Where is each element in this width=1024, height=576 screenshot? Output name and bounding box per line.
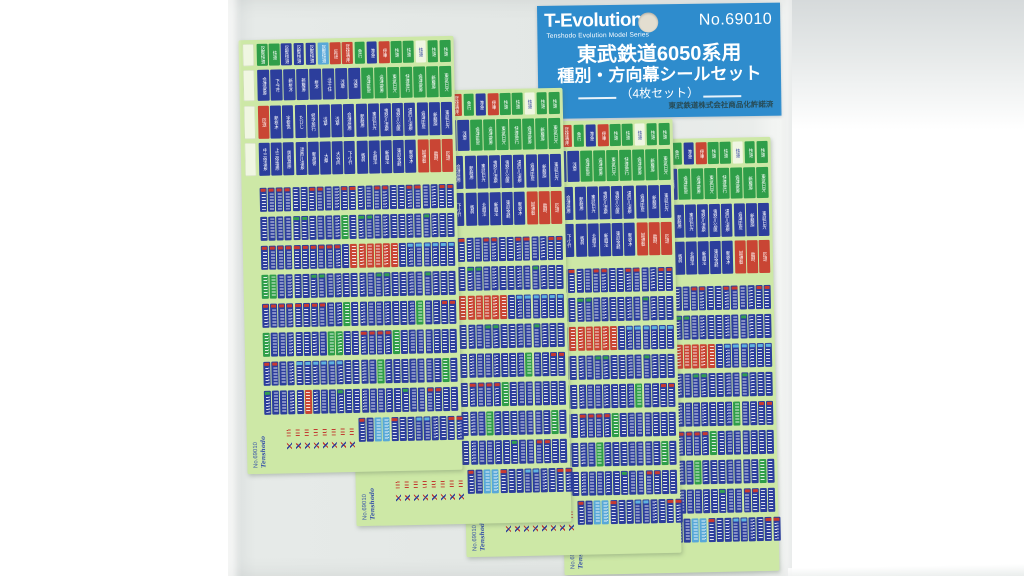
sticker <box>723 286 731 310</box>
sticker-cap <box>424 417 429 420</box>
sticker-glyphs <box>582 473 586 494</box>
sticker: 新藤原 <box>574 187 586 220</box>
sticker: 快速 <box>659 123 670 145</box>
sticker-glyphs <box>378 336 382 353</box>
sticker-glyphs <box>512 412 516 433</box>
sticker-glyphs <box>758 316 762 337</box>
sticker <box>708 373 716 397</box>
sticker-glyphs <box>302 221 306 238</box>
sticker-glyphs <box>294 189 298 210</box>
footer-mark-arrow <box>405 494 410 501</box>
sticker-text: 浅草 <box>571 152 577 181</box>
sticker: 東武日光 <box>439 66 452 97</box>
sticker-glyphs <box>685 346 689 367</box>
sticker-text: 東武金崎 <box>713 242 719 273</box>
sticker <box>533 323 541 347</box>
sticker <box>509 324 517 348</box>
sticker-glyphs <box>595 328 599 349</box>
sticker-glyphs <box>726 519 730 540</box>
sticker <box>651 354 659 378</box>
sticker <box>559 381 567 405</box>
sticker <box>742 401 750 425</box>
sticker-glyphs <box>557 241 561 258</box>
sticker-glyphs <box>630 443 634 464</box>
sticker <box>557 323 565 347</box>
sticker <box>477 354 485 378</box>
sticker-glyphs <box>409 418 413 439</box>
sticker-cap <box>741 344 746 347</box>
sticker <box>294 274 302 298</box>
sticker-glyphs <box>594 274 598 291</box>
sticker: 快速 <box>512 93 523 115</box>
sticker-glyphs <box>432 215 436 236</box>
sticker-glyphs <box>660 331 664 348</box>
sticker: 鬼怒川温泉 <box>599 186 611 219</box>
sticker-glyphs <box>598 473 602 494</box>
sticker-glyphs <box>660 501 664 522</box>
sticker-glyphs <box>559 324 563 345</box>
sticker-text: 新高徳 <box>310 143 316 174</box>
sticker: 回送 <box>551 191 563 224</box>
sticker-glyphs <box>369 303 373 324</box>
sticker-text: 浅草 <box>461 121 467 150</box>
sticker <box>751 459 759 483</box>
sticker <box>527 439 535 463</box>
sticker-glyphs <box>383 191 387 208</box>
sticker-text: 新藤原 <box>358 105 364 136</box>
sticker-cap <box>766 344 771 347</box>
sticker-glyphs <box>716 287 720 308</box>
sticker <box>469 383 477 407</box>
sticker: 浅草 <box>457 120 470 151</box>
sticker <box>544 439 552 463</box>
sticker-glyphs <box>526 300 530 317</box>
sticker-text: 停車 <box>600 125 605 145</box>
sticker: 湯西川温泉 <box>295 142 307 175</box>
sticker-glyphs <box>688 491 692 512</box>
sticker-glyphs <box>344 246 348 267</box>
sticker-glyphs <box>677 504 681 521</box>
sticker <box>666 267 674 291</box>
sticker-glyphs <box>542 470 546 491</box>
sticker <box>357 186 365 210</box>
sticker <box>725 373 733 397</box>
sticker: 会津高原 <box>691 168 704 199</box>
sticker-glyphs <box>485 268 489 289</box>
sticker-glyphs <box>345 304 349 325</box>
sticker-cap <box>311 275 316 278</box>
sticker-glyphs <box>464 442 468 463</box>
sticker <box>333 186 341 210</box>
sticker <box>707 315 715 339</box>
sticker <box>585 327 593 351</box>
sticker: 下今市 <box>270 69 283 100</box>
sticker <box>716 344 724 368</box>
sticker <box>477 382 485 406</box>
sticker-glyphs <box>503 355 507 376</box>
sticker <box>691 315 699 339</box>
sticker-glyphs <box>376 245 380 266</box>
sticker-text: 浅草 <box>322 105 328 136</box>
sticker-glyphs <box>709 317 713 338</box>
sticker <box>743 488 751 512</box>
sticker <box>570 385 578 409</box>
sticker-text: 急行 <box>357 43 362 63</box>
sticker-cap <box>297 362 302 365</box>
sticker <box>659 325 667 349</box>
sticker <box>410 388 418 412</box>
sticker <box>748 314 756 338</box>
sticker: 東武日光 <box>704 168 717 199</box>
sticker-glyphs <box>327 217 331 238</box>
sticker: 鬼怒川公園 <box>392 103 404 136</box>
sticker <box>398 185 406 209</box>
sticker-cap <box>566 469 571 472</box>
sticker <box>699 315 707 339</box>
sticker-glyphs <box>670 388 674 405</box>
sticker-glyphs <box>759 374 763 395</box>
sticker-cap <box>516 238 521 241</box>
footer-mark-red <box>341 428 345 435</box>
sticker-glyphs <box>603 299 607 320</box>
sticker-glyphs <box>631 472 635 493</box>
sticker-cap <box>376 273 381 276</box>
sticker-glyphs <box>702 379 706 396</box>
footer-mark-arrow <box>569 524 574 531</box>
sticker-glyphs <box>494 330 498 347</box>
sticker <box>311 303 319 327</box>
sticker-text: 快速 <box>442 41 447 61</box>
sticker: 東武金崎 <box>393 140 405 173</box>
sticker-glyphs <box>353 303 357 324</box>
sticker-glyphs <box>500 239 504 260</box>
sticker-cap <box>359 419 364 422</box>
sticker: 新藤原 <box>429 102 441 135</box>
sticker <box>735 459 743 483</box>
sticker-cap <box>486 383 491 386</box>
sticker: 会津田島 <box>678 168 691 199</box>
sticker-glyphs <box>759 407 763 424</box>
sticker-glyphs <box>644 331 648 348</box>
sticker-glyphs <box>685 520 689 541</box>
sticker: 新鹿沼 <box>600 223 612 256</box>
sticker <box>685 403 693 427</box>
sticker-glyphs <box>661 356 665 377</box>
sticker <box>440 271 448 295</box>
sticker <box>474 238 482 262</box>
sticker-glyphs <box>760 431 764 452</box>
sticker-cap <box>470 384 475 387</box>
sticker <box>447 184 455 208</box>
sticker-glyphs <box>628 501 632 522</box>
sticker-glyphs <box>654 443 658 464</box>
sticker: 区間快速 <box>293 43 304 65</box>
sticker-glyphs <box>355 390 359 411</box>
sticker-text: 会津高原 <box>261 71 267 100</box>
sticker <box>476 325 484 349</box>
sticker-cap <box>408 244 413 247</box>
sticker-glyphs <box>620 501 624 522</box>
sticker-cap <box>392 418 397 421</box>
sticker-text: 会津高原 <box>487 120 493 149</box>
sticker-glyphs <box>558 299 562 316</box>
sticker <box>701 402 709 426</box>
hang-hole <box>638 12 658 32</box>
sticker <box>316 187 324 211</box>
sticker-cap <box>533 266 538 269</box>
sticker-cap <box>588 415 593 418</box>
sticker <box>610 355 618 379</box>
sticker-glyphs <box>298 392 302 413</box>
sticker-text: 男鹿高原 <box>286 143 292 174</box>
sticker-glyphs <box>265 396 269 413</box>
sticker-text: 快速 <box>272 45 277 65</box>
sticker <box>328 331 336 355</box>
sticker: 快速 <box>391 41 402 63</box>
sticker-cap <box>764 286 769 289</box>
sticker-text: 東武日光 <box>500 120 506 149</box>
sticker-cap <box>449 417 454 420</box>
sticker-glyphs <box>757 291 761 308</box>
sticker <box>617 297 625 321</box>
sticker-glyphs <box>449 421 453 438</box>
sticker <box>517 353 525 377</box>
sticker-text: 東武日光 <box>708 169 714 198</box>
product-photo: T-Evolution Tenshodo Evolution Model Ser… <box>0 0 1024 576</box>
sticker <box>288 361 296 385</box>
sticker-glyphs <box>352 245 356 266</box>
sticker <box>558 352 566 376</box>
sticker: 会津田島 <box>635 185 647 218</box>
sticker-glyphs <box>399 186 403 207</box>
sticker <box>400 301 408 325</box>
sticker-glyphs <box>541 267 545 288</box>
sticker: 浅草 <box>319 104 331 137</box>
sticker-glyphs <box>662 413 666 434</box>
sticker <box>271 333 279 357</box>
sticker <box>390 214 398 238</box>
sticker-glyphs <box>271 251 275 268</box>
sticker <box>585 298 593 322</box>
sticker <box>261 275 269 299</box>
sticker <box>508 469 516 493</box>
sticker <box>719 489 727 513</box>
sticker-text: 北鹿沼 <box>371 141 377 172</box>
sticker: 新藤原 <box>296 69 309 100</box>
sticker <box>767 430 775 454</box>
sticker <box>296 361 304 385</box>
sticker <box>500 295 508 319</box>
sticker-cap <box>319 246 324 249</box>
sticker: 快速急行 <box>717 168 730 199</box>
sticker <box>278 274 286 298</box>
sticker-text: 快速 <box>661 124 666 144</box>
sticker <box>475 267 483 291</box>
sticker: 鬼怒川温泉 <box>697 204 709 237</box>
sticker-glyphs <box>696 462 700 483</box>
sticker-glyphs <box>587 328 591 349</box>
sticker <box>398 214 406 238</box>
sticker-glyphs <box>694 404 698 425</box>
sticker: 会津高原 <box>593 150 606 181</box>
sticker <box>415 242 423 266</box>
sticker <box>507 237 515 261</box>
sticker <box>507 266 515 290</box>
sticker <box>702 431 710 455</box>
sticker <box>319 303 327 327</box>
sticker-glyphs <box>304 308 308 325</box>
sticker-text: 回送 <box>333 43 338 63</box>
sticker <box>580 472 588 496</box>
sticker-glyphs <box>462 355 466 376</box>
sticker-text: 会津高原 <box>417 67 423 96</box>
sticker-glyphs <box>387 390 391 411</box>
sticker-cap <box>622 472 627 475</box>
sticker-text: 鬼怒川公園 <box>504 156 510 187</box>
sticker-cap <box>558 469 563 472</box>
sticker-text: 臨時 <box>651 223 657 254</box>
sticker <box>450 329 458 353</box>
sticker-glyphs <box>518 325 522 346</box>
sticker <box>310 274 318 298</box>
sticker-glyphs <box>328 275 332 296</box>
sticker-glyphs <box>492 243 496 260</box>
sticker <box>620 413 628 437</box>
sticker <box>417 329 425 353</box>
sticker-text: 新藤原 <box>300 70 306 99</box>
sticker-glyphs <box>752 432 756 453</box>
sticker <box>410 359 418 383</box>
sticker <box>341 186 349 210</box>
sticker: 北鹿沼 <box>587 223 599 256</box>
sticker <box>764 285 772 309</box>
sticker-glyphs <box>629 385 633 406</box>
sticker: 快速 <box>720 142 731 164</box>
sticker: 東武日光 <box>685 204 697 237</box>
sticker-text: 快速急行 <box>404 68 410 97</box>
sticker <box>612 442 620 466</box>
sticker: 会津田島 <box>580 150 593 181</box>
sticker-glyphs <box>435 331 439 352</box>
sticker: 回送 <box>442 139 454 172</box>
sticker <box>734 430 742 454</box>
sticker-text: 新鹿沼 <box>493 193 499 224</box>
sticker-glyphs <box>263 276 267 297</box>
sticker: 快速 <box>500 93 511 115</box>
sticker-glyphs <box>461 326 465 347</box>
sticker-glyphs <box>571 357 575 378</box>
sticker <box>560 439 568 463</box>
sticker-text: 会津高原 <box>597 151 603 180</box>
sticker-glyphs <box>469 297 473 318</box>
sticker-cap <box>382 186 387 189</box>
sticker-text: 下小代 <box>566 225 572 256</box>
sticker: 東武日光 <box>368 103 380 136</box>
sticker-glyphs <box>360 245 364 266</box>
footer-mark-red <box>305 429 309 436</box>
sticker-cap <box>741 315 746 318</box>
sticker-text: 北鹿沼 <box>590 224 596 255</box>
sticker-glyphs <box>742 523 746 540</box>
sticker <box>549 468 557 492</box>
sticker <box>765 372 773 396</box>
sticker <box>418 387 426 411</box>
sticker-cap <box>485 325 490 328</box>
footer-mark-arrow <box>432 494 437 501</box>
sticker-text: 北鹿沼 <box>688 242 694 273</box>
footer-mark-red <box>450 480 454 487</box>
sticker-glyphs <box>363 390 367 411</box>
sticker-glyphs <box>560 382 564 403</box>
sticker-cap <box>643 297 648 300</box>
sticker-glyphs <box>701 317 705 338</box>
sticker-glyphs <box>753 494 757 511</box>
sticker: 東武日光 <box>441 102 453 135</box>
sticker-glyphs <box>476 272 480 289</box>
sticker-cap <box>533 295 538 298</box>
sticker-text: 板荷 <box>468 194 474 225</box>
sticker <box>524 294 532 318</box>
sticker-glyphs <box>376 216 380 237</box>
sticker-cap <box>320 304 325 307</box>
sticker <box>510 382 518 406</box>
sticker-text: 会津高原 <box>636 150 642 179</box>
sticker-glyphs <box>417 422 421 439</box>
sticker-glyphs <box>461 297 465 318</box>
sheet-footer: No.69010Tenshodo <box>362 478 377 520</box>
sticker <box>448 242 456 266</box>
sticker-glyphs <box>663 471 667 492</box>
sticker-glyphs <box>611 299 615 320</box>
sticker-glyphs <box>289 363 293 384</box>
sticker-glyphs <box>311 250 315 267</box>
sticker-cap <box>693 374 698 377</box>
sticker <box>557 468 565 492</box>
sticker-glyphs <box>305 366 309 383</box>
sticker: 大桑 <box>320 141 332 174</box>
sticker-glyphs <box>310 217 314 238</box>
sticker: 快速急行 <box>400 67 413 98</box>
sticker: 新藤原 <box>535 118 548 149</box>
sticker <box>376 301 384 325</box>
sticker-glyphs <box>435 360 439 381</box>
sticker-cap <box>302 217 307 220</box>
sticker-glyphs <box>550 470 554 491</box>
sticker <box>407 417 415 441</box>
sticker-glyphs <box>735 403 739 424</box>
sticker <box>467 296 475 320</box>
sticker <box>543 410 551 434</box>
sticker-glyphs <box>745 494 749 511</box>
sticker <box>361 360 369 384</box>
sticker-glyphs <box>493 471 497 492</box>
sticker-glyphs <box>486 355 490 376</box>
sticker <box>541 468 549 492</box>
sticker: 東武金崎 <box>502 192 514 225</box>
sticker-cap <box>416 418 421 421</box>
sticker-glyphs <box>549 242 553 259</box>
sticker-glyphs <box>369 274 373 295</box>
sticker-text: 新藤原 <box>430 67 436 96</box>
sticker-cap <box>491 238 496 241</box>
sticker <box>724 344 732 368</box>
sticker: 回送 <box>330 42 341 64</box>
sticker-glyphs <box>463 413 467 434</box>
sticker-cap <box>559 353 564 356</box>
sticker-glyphs <box>409 273 413 294</box>
sticker-glyphs <box>286 218 290 239</box>
sticker-cap <box>468 268 473 271</box>
